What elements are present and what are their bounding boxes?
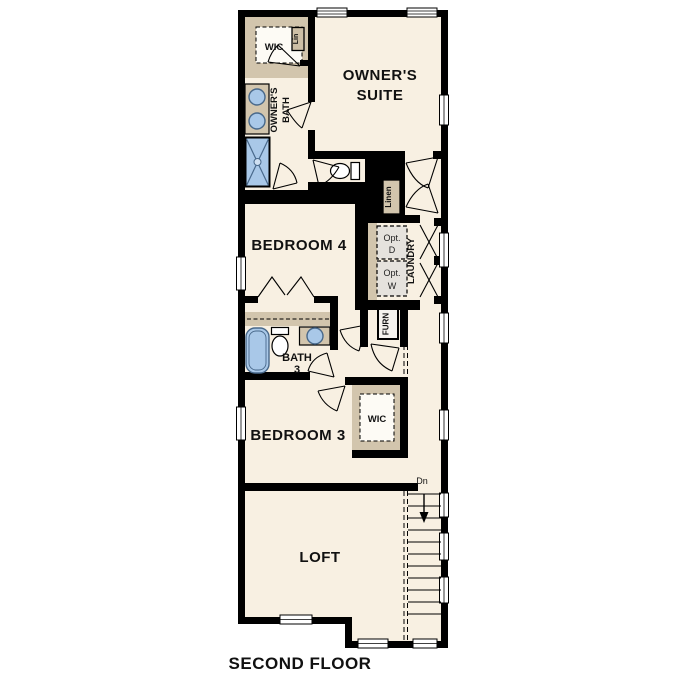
laundry-label: LAUNDRY — [406, 237, 417, 284]
window-right-hall-2 — [440, 313, 449, 343]
window-left-bedroom3 — [237, 407, 246, 440]
wall-bedroom3-bottom — [238, 483, 418, 491]
bedroom3-wic-label: WIC — [368, 414, 387, 425]
wall-toilet-room-mass — [308, 182, 370, 204]
wall-bedroom3-wic-bottom — [352, 450, 408, 458]
window-left-bedroom4 — [237, 257, 246, 290]
owners-wic-label: WIC — [265, 42, 284, 53]
bath3-tub — [246, 328, 269, 373]
wall-laundry-top — [355, 215, 420, 223]
stairs-dn-label: Dn — [416, 476, 428, 486]
bath3-label-2: 3 — [294, 364, 300, 376]
bath3-label-1: BATH — [282, 352, 312, 364]
floor-plan-svg: OWNER'S SUITE WIC Lin OWNER'S BATH BEDRO… — [0, 0, 687, 687]
wall-bedroom4-bottom-left — [238, 296, 258, 303]
wall-wic-bath-right-upper — [308, 17, 315, 102]
loft-label: LOFT — [299, 549, 340, 566]
owners-bath-label-1: OWNER'S — [269, 87, 280, 132]
owners-sink-2 — [249, 113, 265, 129]
opt-dryer-label-2: D — [389, 245, 396, 255]
bedroom3-label: BEDROOM 3 — [250, 427, 345, 444]
window-right-hall-1 — [440, 233, 449, 267]
laundry-counter-strip — [368, 223, 377, 300]
wall-furn-right — [400, 300, 408, 347]
wall-wic-door-stub — [300, 60, 315, 66]
owners-bath-label-2: BATH — [281, 97, 292, 123]
wall-left — [238, 10, 245, 624]
lin-label: Lin — [293, 34, 300, 45]
wall-furn-left — [360, 300, 368, 347]
floor-plan-page: OWNER'S SUITE WIC Lin OWNER'S BATH BEDRO… — [0, 0, 687, 687]
window-bottom-2 — [413, 639, 437, 648]
window-right-stair-1 — [440, 493, 449, 517]
bedroom4-label: BEDROOM 4 — [251, 237, 347, 254]
linen-label: Linen — [384, 186, 393, 207]
window-right-stair-2 — [440, 533, 449, 560]
owners-sink-1 — [249, 89, 265, 105]
window-top-2 — [407, 8, 437, 17]
floor-plan-title: SECOND FLOOR — [229, 654, 372, 673]
owners-suite-label-1: OWNER'S — [343, 67, 418, 84]
wall-bedroom3-wic-right — [400, 377, 408, 458]
opt-washer-label-1: Opt. — [383, 268, 400, 278]
window-bottom-loft — [280, 615, 312, 624]
window-bottom-1 — [358, 639, 388, 648]
owners-shower — [246, 138, 270, 187]
window-right-suite — [440, 95, 449, 125]
owners-suite-label-2: SUITE — [357, 87, 404, 104]
furnace-label: FURN — [382, 313, 391, 335]
opt-washer-label-2: W — [388, 281, 397, 291]
opt-dryer-label-1: Opt. — [383, 233, 400, 243]
wall-bedroom3-wic-top — [345, 377, 408, 385]
bath3-sink — [307, 328, 323, 344]
owners-toilet — [331, 163, 360, 180]
window-right-hall-3 — [440, 410, 449, 440]
wall-bath3-closet-right — [330, 296, 338, 350]
window-top-1 — [317, 8, 347, 17]
